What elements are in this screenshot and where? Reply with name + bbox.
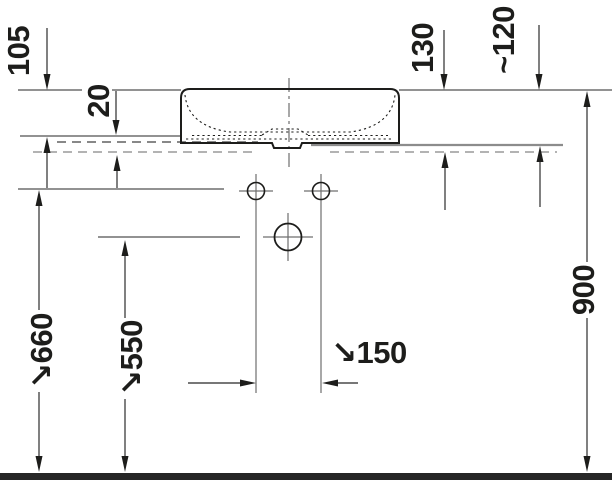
dim-150-label: ↘150 (331, 335, 407, 370)
dim-130-arrow-down-icon (441, 74, 448, 90)
dim-150-value: 150 (356, 335, 406, 370)
dimension-150: ↘150 (188, 335, 407, 387)
dim-660-label: ↘660 (24, 313, 59, 389)
dim-900-arrow-down-icon (584, 456, 591, 472)
floor-bar (0, 473, 612, 480)
dimension-130: 130 (405, 23, 449, 210)
dim-105-label: 105 (1, 26, 36, 76)
dim-660-value: 660 (24, 313, 59, 363)
dim-130-label: 130 (405, 23, 440, 73)
dim-550-diagonal-arrow-icon: ↘ (114, 370, 149, 395)
dim-660-arrow-down-icon (36, 456, 43, 472)
dim-20-arrow-up-icon (114, 155, 121, 171)
dimension-550: ↘550 (114, 240, 149, 472)
dim-900-label: 900 (566, 265, 601, 315)
dim-20-label: 20 (81, 84, 116, 117)
dim-120-label: ~120 (486, 6, 521, 74)
dim-120-arrow-up-icon (537, 146, 544, 162)
dim-550-arrow-up-icon (122, 240, 129, 256)
dim-20-arrow-down-icon (113, 120, 120, 135)
dim-130-arrow-up-icon (442, 152, 449, 168)
dim-550-arrow-down-icon (122, 456, 129, 472)
dim-900-arrow-up-icon (584, 91, 591, 107)
dimension-120: ~120 (486, 6, 544, 207)
technical-drawing-canvas: 105 20 130 ~120 900 ↘660 (0, 0, 612, 480)
dim-105-arrow-up-icon (44, 137, 51, 153)
dim-660-diagonal-arrow-icon: ↘ (24, 363, 59, 388)
reference-lines (0, 90, 612, 480)
dimension-900: 900 (566, 91, 601, 472)
washbasin-dimension-drawing: 105 20 130 ~120 900 ↘660 (0, 0, 612, 480)
dimension-660: ↘660 (24, 190, 59, 472)
basin-outline (181, 78, 399, 170)
dim-550-label: ↘550 (114, 320, 149, 396)
dim-150-arrow-left-icon (322, 380, 338, 387)
dim-105-arrow-down-icon (44, 74, 51, 90)
dim-150-diagonal-arrow-icon: ↘ (331, 335, 356, 370)
dim-660-arrow-up-icon (36, 190, 43, 206)
basin-inner-bowl-dotted (185, 95, 395, 132)
fixture-holes (239, 174, 338, 393)
dimension-105: 105 (1, 26, 51, 188)
dim-550-value: 550 (114, 320, 149, 370)
dim-150-arrow-right-icon (240, 380, 256, 387)
drain-recess-dotted (262, 129, 308, 135)
dim-120-arrow-down-icon (536, 74, 543, 90)
